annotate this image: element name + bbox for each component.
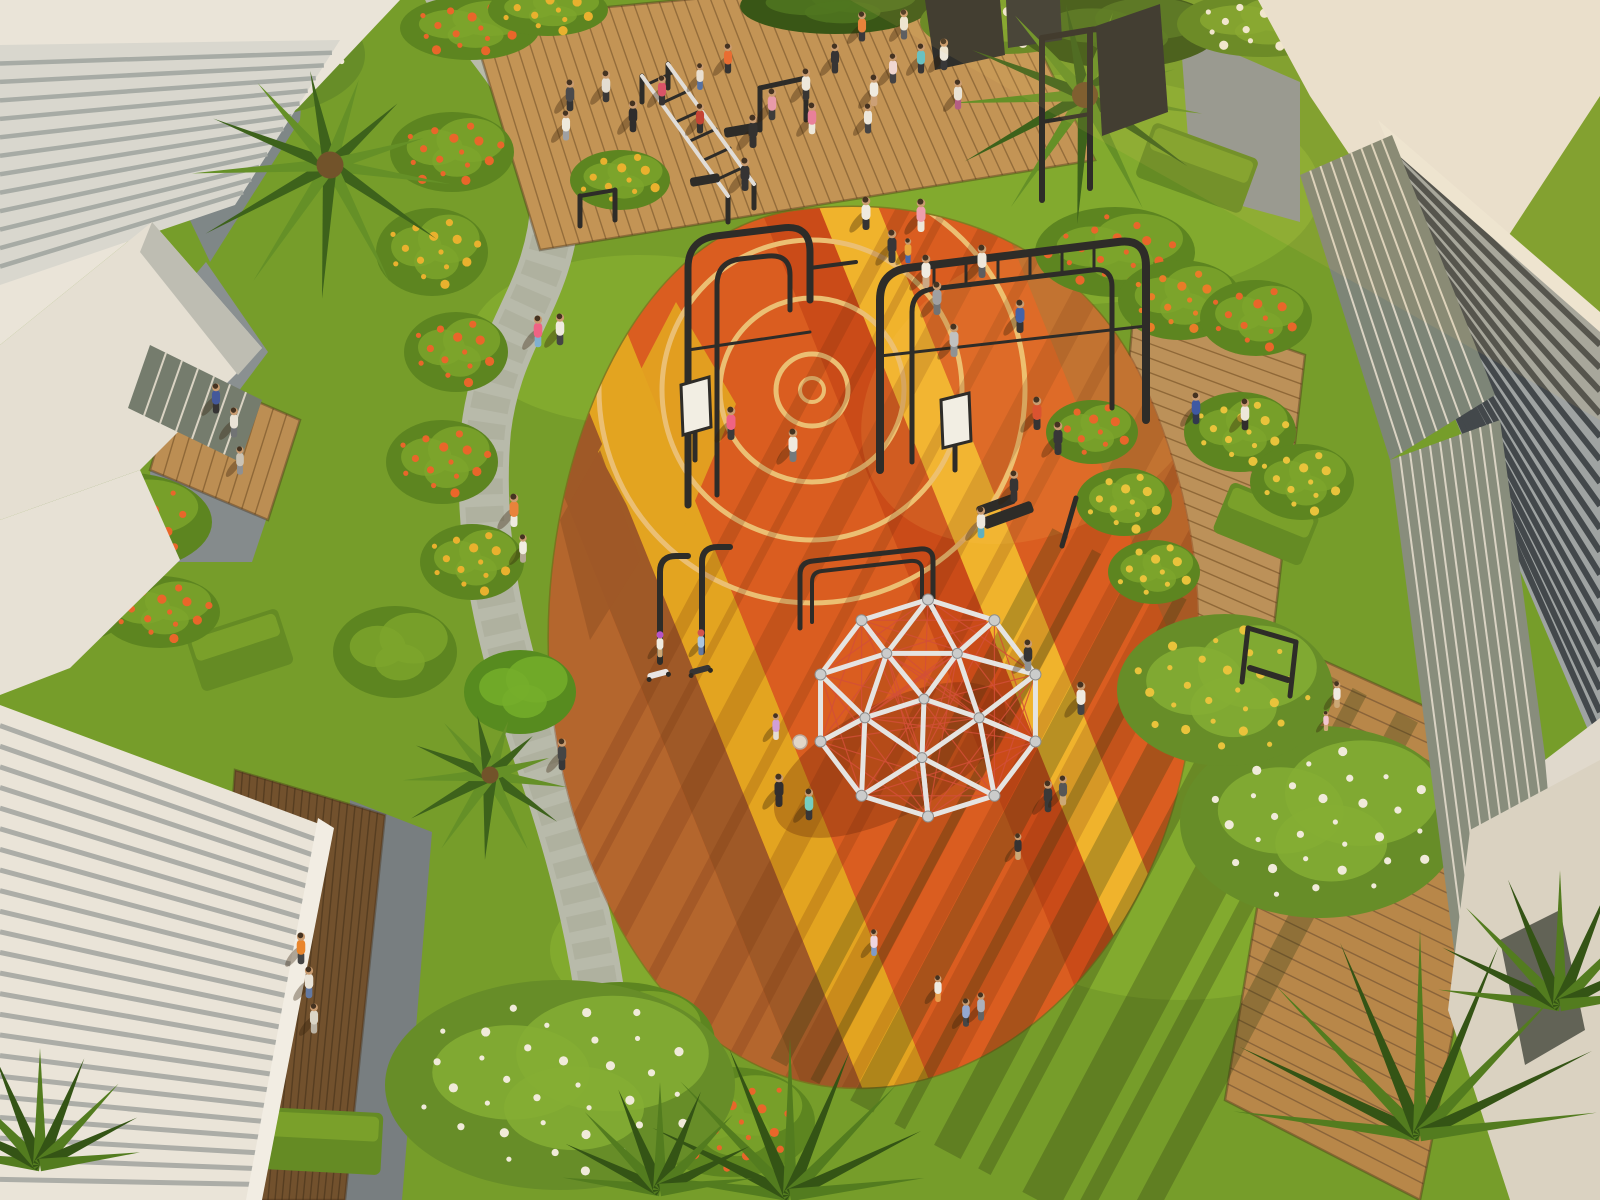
scene-canvas — [0, 0, 1600, 1200]
warm-light-overlay — [0, 0, 1600, 1200]
courtyard-rendering — [0, 0, 1600, 1200]
